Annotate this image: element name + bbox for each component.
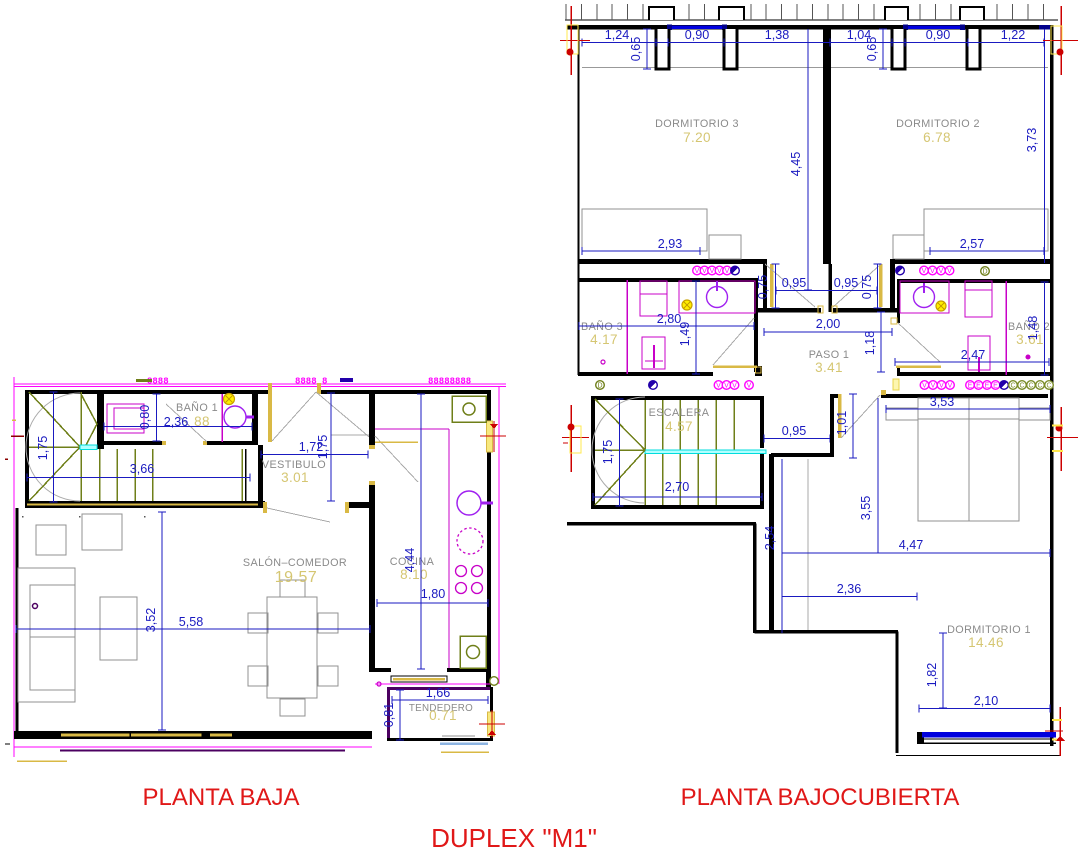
svg-text:0,65: 0,65	[865, 37, 879, 62]
svg-text:V: V	[702, 268, 707, 275]
svg-text:V: V	[922, 268, 927, 275]
svg-text:E: E	[993, 382, 998, 389]
svg-text:0,81: 0,81	[382, 703, 396, 728]
svg-text:0,90: 0,90	[685, 28, 710, 42]
svg-text:0,65: 0,65	[629, 37, 643, 62]
svg-text:5,58: 5,58	[179, 615, 204, 629]
svg-text:4,47: 4,47	[899, 538, 924, 552]
svg-text:14.46: 14.46	[968, 635, 1004, 650]
svg-text:C: C	[1046, 382, 1051, 389]
svg-text:3.01: 3.01	[281, 470, 309, 485]
svg-text:V: V	[747, 382, 752, 389]
svg-text:BAÑO 1: BAÑO 1	[176, 401, 218, 414]
svg-text:0,95: 0,95	[782, 276, 807, 290]
svg-text:3,53: 3,53	[930, 395, 955, 409]
svg-text:2,10: 2,10	[974, 694, 999, 708]
svg-text:1,82: 1,82	[925, 663, 939, 688]
svg-text:V: V	[717, 268, 722, 275]
svg-text:1,66: 1,66	[426, 686, 451, 700]
svg-text:3,52: 3,52	[144, 608, 158, 633]
svg-text:V: V	[922, 382, 927, 389]
svg-text:1,75: 1,75	[36, 436, 50, 461]
svg-text:2,36: 2,36	[164, 415, 189, 429]
svg-text:1,18: 1,18	[863, 331, 877, 356]
svg-text:V: V	[716, 382, 721, 389]
svg-text:1,01: 1,01	[835, 411, 849, 436]
svg-text:88888888: 88888888	[428, 377, 471, 387]
svg-text:4,44: 4,44	[403, 548, 417, 573]
svg-text:PLANTA BAJOCUBIERTA: PLANTA BAJOCUBIERTA	[681, 784, 960, 811]
svg-text:0,95: 0,95	[834, 276, 859, 290]
svg-text:3,66: 3,66	[130, 462, 155, 476]
svg-text:V: V	[931, 382, 936, 389]
svg-text:SALÓN–COMEDOR: SALÓN–COMEDOR	[243, 556, 347, 569]
svg-text:7.20: 7.20	[683, 130, 711, 145]
svg-text:V: V	[947, 268, 952, 275]
svg-text:V: V	[710, 268, 715, 275]
svg-text:1,38: 1,38	[765, 28, 790, 42]
svg-text:3,73: 3,73	[1025, 128, 1039, 153]
svg-text:2,70: 2,70	[665, 480, 690, 494]
svg-text:C: C	[1010, 382, 1015, 389]
svg-text:1,49: 1,49	[678, 322, 692, 347]
svg-text:4,45: 4,45	[789, 152, 803, 177]
svg-text:1,24: 1,24	[605, 28, 630, 42]
svg-text:8888 8: 8888 8	[295, 377, 327, 387]
svg-text:6.78: 6.78	[923, 130, 951, 145]
svg-text:0.71: 0.71	[429, 708, 457, 723]
svg-text:C: C	[1019, 382, 1024, 389]
svg-text:1,48: 1,48	[1026, 316, 1040, 341]
svg-text:ESCALERA: ESCALERA	[649, 407, 710, 419]
svg-text:2,93: 2,93	[658, 237, 683, 251]
svg-text:V: V	[724, 382, 729, 389]
svg-text:C: C	[1037, 382, 1042, 389]
svg-text:V: V	[725, 268, 730, 275]
svg-text:3,55: 3,55	[859, 496, 873, 521]
svg-text:1,75: 1,75	[316, 435, 330, 460]
svg-text:D: D	[982, 268, 987, 275]
svg-text:E: E	[968, 382, 973, 389]
svg-text:E: E	[985, 382, 990, 389]
svg-text:2,57: 2,57	[960, 237, 985, 251]
svg-text:PLANTA BAJA: PLANTA BAJA	[143, 784, 300, 811]
svg-text:C: C	[1028, 382, 1033, 389]
svg-text:2,00: 2,00	[816, 317, 841, 331]
svg-text:0,75: 0,75	[860, 275, 874, 300]
svg-text:V: V	[930, 268, 935, 275]
svg-text:DUPLEX "M1": DUPLEX "M1"	[431, 823, 597, 853]
svg-text:V: V	[948, 382, 953, 389]
svg-text:3.41: 3.41	[815, 360, 843, 375]
svg-text:2,47: 2,47	[961, 348, 986, 362]
svg-text:DORMITORIO 3: DORMITORIO 3	[655, 118, 739, 130]
svg-text:19.57: 19.57	[275, 569, 318, 586]
svg-text:4.17: 4.17	[590, 332, 618, 347]
svg-text:88: 88	[194, 414, 210, 429]
svg-text:4.57: 4.57	[665, 419, 693, 434]
svg-text:0,80: 0,80	[138, 405, 152, 430]
svg-text:D: D	[597, 382, 602, 389]
svg-text:2,54: 2,54	[763, 526, 777, 551]
svg-text:DORMITORIO 2: DORMITORIO 2	[896, 118, 980, 130]
svg-text:0,90: 0,90	[926, 28, 951, 42]
svg-text:V: V	[939, 382, 944, 389]
svg-text:0,95: 0,95	[782, 424, 807, 438]
svg-text:V: V	[695, 268, 700, 275]
svg-text:1,80: 1,80	[421, 587, 446, 601]
svg-text:1,22: 1,22	[1001, 28, 1026, 42]
svg-text:1,75: 1,75	[601, 440, 615, 465]
svg-text:0,75: 0,75	[756, 275, 770, 300]
svg-text:E: E	[976, 382, 981, 389]
svg-text:V: V	[732, 382, 737, 389]
svg-text:2,36: 2,36	[837, 582, 862, 596]
svg-text:V: V	[939, 268, 944, 275]
